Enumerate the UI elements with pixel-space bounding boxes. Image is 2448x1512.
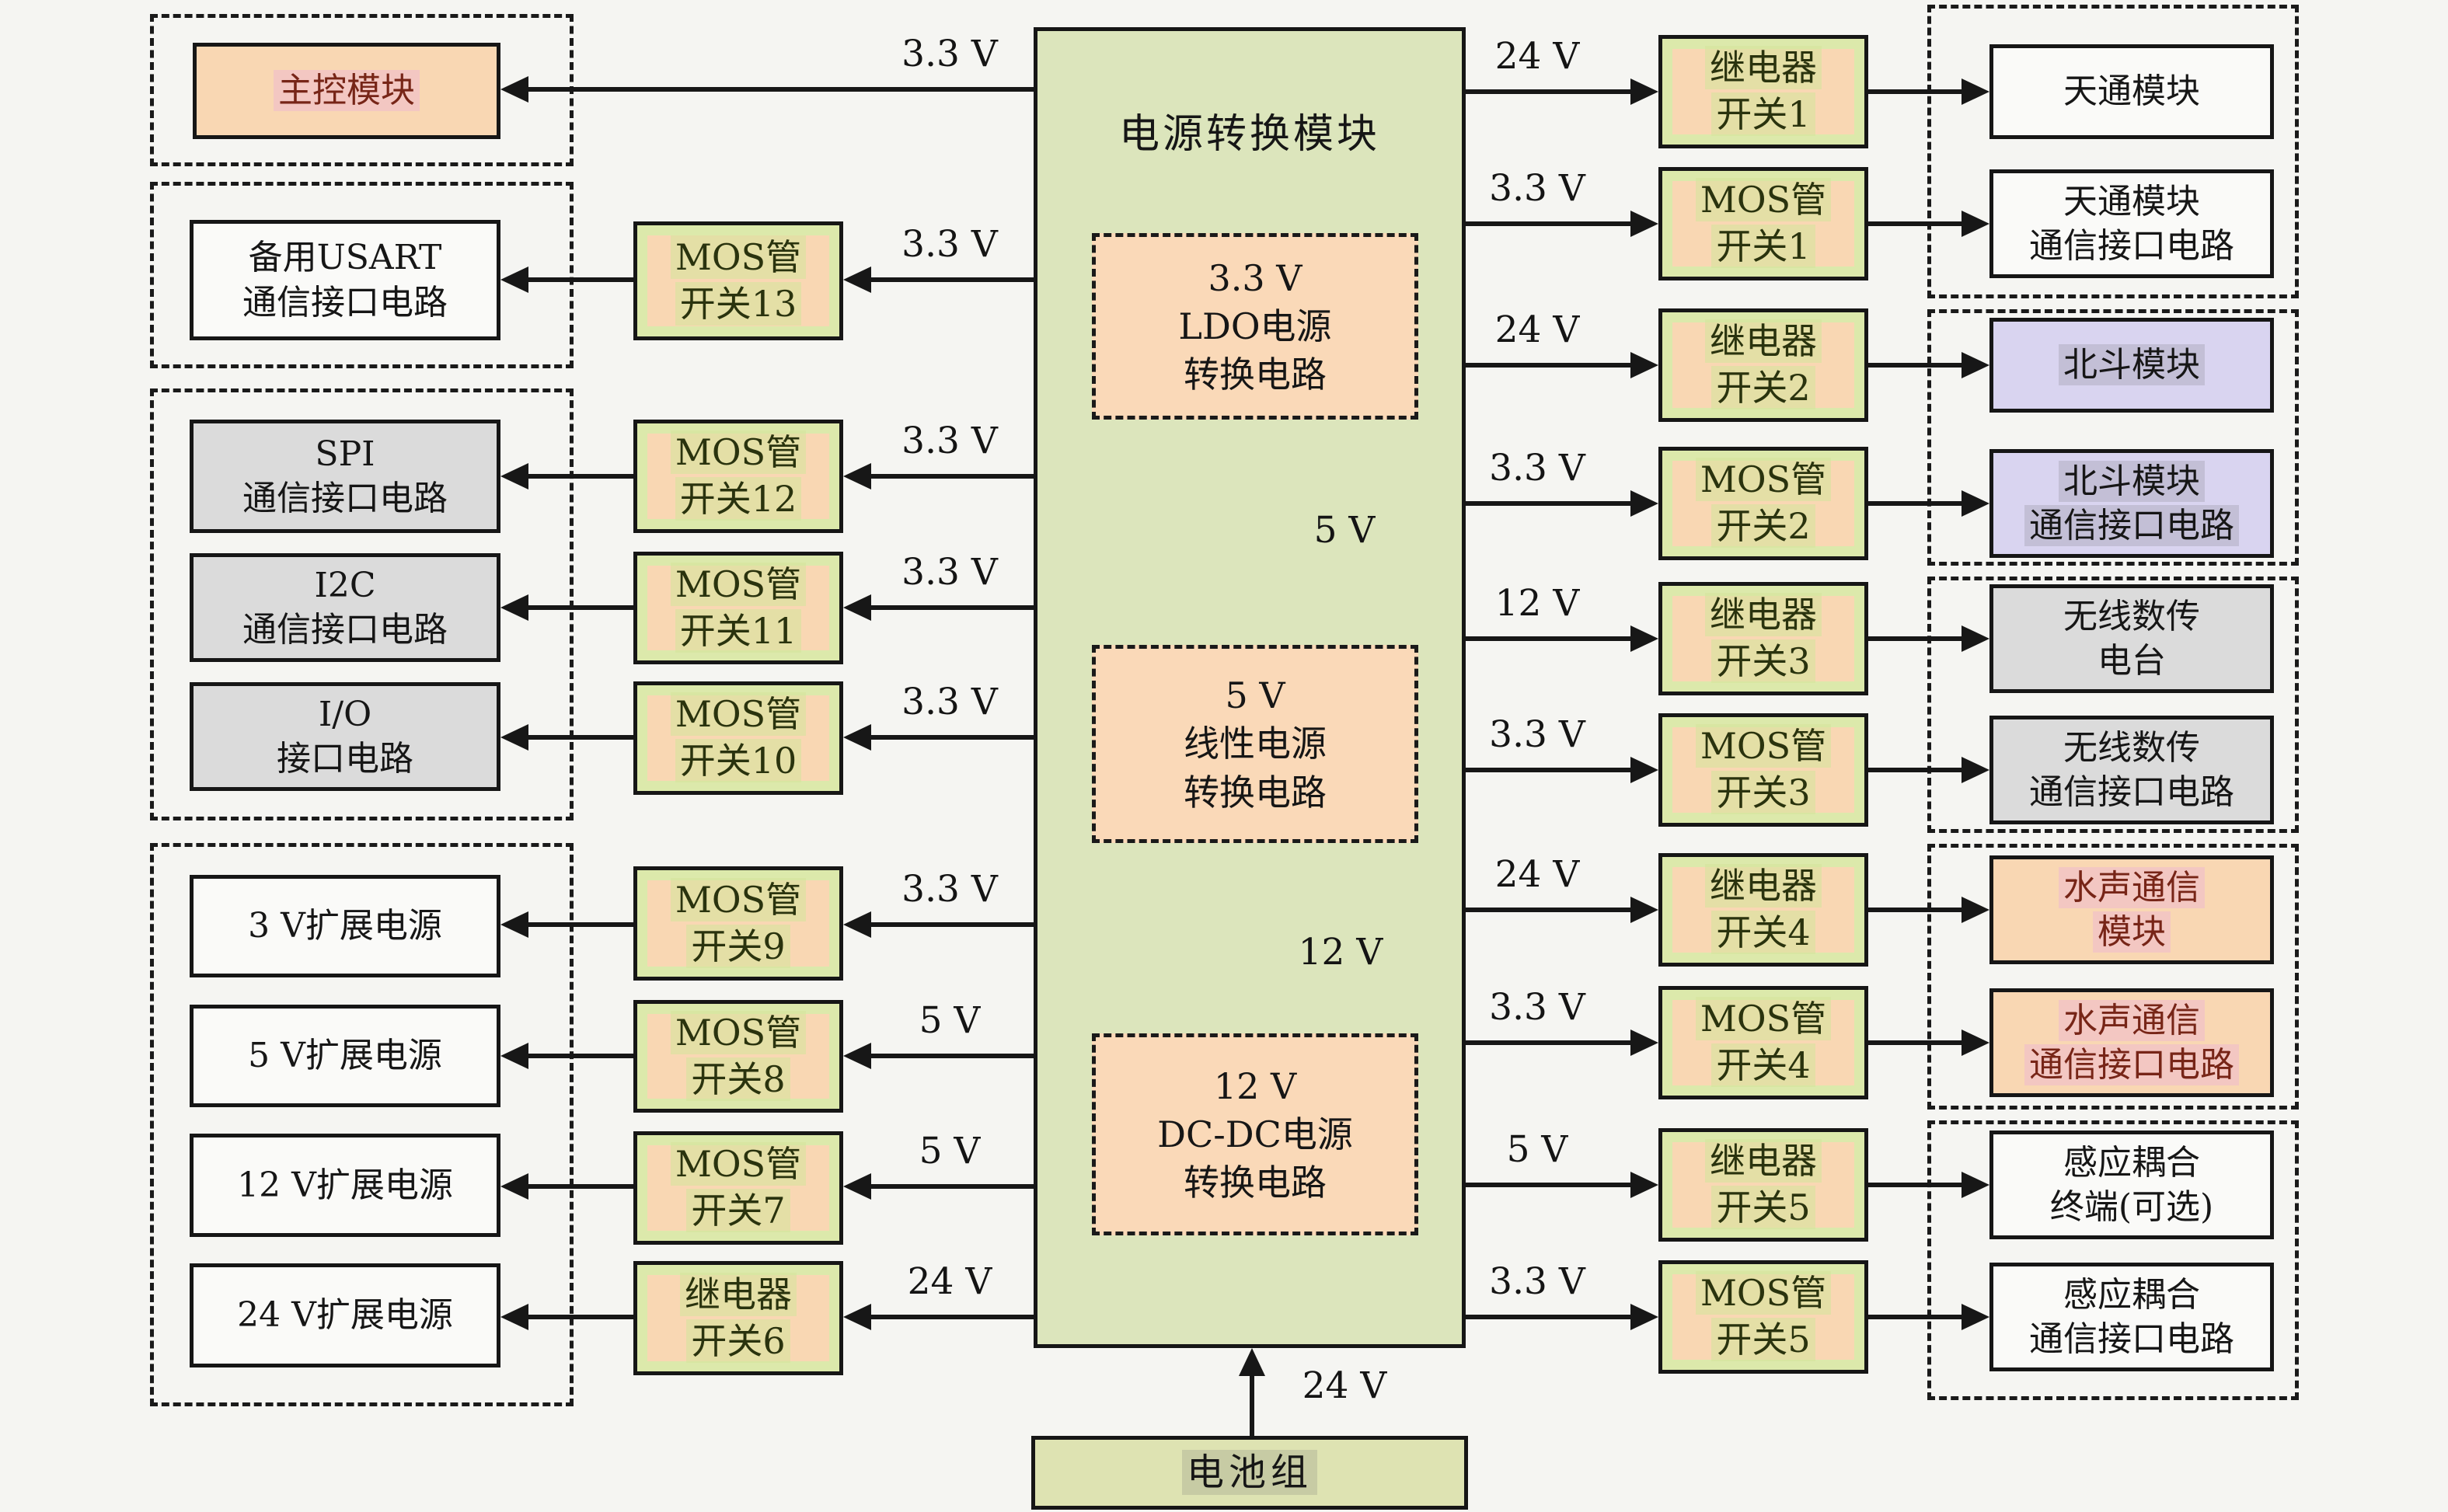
arrowhead-right [1962,490,1989,517]
connector-line [868,1054,1034,1058]
connector-line [868,1315,1034,1319]
voltage-label: 3.3 V [833,223,1066,266]
node-text-line: 12 V [1096,1062,1414,1110]
mos-switch-8-label: 开关8 [686,1057,790,1101]
node-text-line: 开关2 [1662,365,1864,412]
node-text-line: MOS管 [1662,177,1864,224]
mos-switch-12-label: 开关12 [675,477,802,521]
arrowhead-right [1630,625,1658,652]
mos-switch-2-label: MOS管 [1696,458,1831,501]
tiantong-comm-interface-label: 天通模块 [2059,181,2205,222]
ldo-3v3-stage-label: LDO电源 [1173,305,1336,348]
ldo-3v3-stage: 3.3 VLDO电源转换电路 [1092,233,1418,420]
node-text-line: 继电器 [1662,863,1864,910]
linear-5v-stage: 5 V线性电源转换电路 [1092,645,1418,843]
inductive-coupling-interface-label: 感应耦合 [2059,1274,2205,1315]
hydroacoustic-comm-interface-label: 水声通信 [2059,1000,2205,1041]
voltage-label: 5 V [833,999,1066,1042]
node-text-line: 无线数传 [1993,726,2270,770]
mos-switch-10-label: MOS管 [671,692,806,736]
node-text-line: I/O [194,692,497,737]
node-text-line: 通信接口电路 [1993,770,2270,814]
main-control-module: 主控模块 [193,43,500,139]
i2c-interface: I2C通信接口电路 [190,553,500,662]
node-text-line: 开关12 [637,476,839,523]
node-text-line: 3 V扩展电源 [194,904,497,948]
mos-switch-1-label: 开关1 [1711,225,1815,268]
expansion-power-24v: 24 V扩展电源 [190,1263,500,1367]
voltage-label: 24 V [833,1260,1066,1303]
connector-line [525,605,633,610]
voltage-label: 24 V [1421,35,1654,78]
connector-line [1868,221,1965,226]
voltage-label: 24 V [1421,308,1654,351]
hydroacoustic-module: 水声通信模块 [1989,855,2274,964]
tiantong-module: 天通模块 [1989,44,2274,139]
io-interface: I/O接口电路 [190,682,500,791]
linear-5v-stage-label: 转换电路 [1179,771,1331,814]
hydroacoustic-module-label: 水声通信 [2059,867,2205,908]
node-text-line: 开关4 [1662,1043,1864,1089]
node-text-line: MOS管 [1662,1270,1864,1317]
voltage-label: 3.3 V [1421,986,1654,1029]
arrowhead-left [500,724,528,751]
expansion-power-5v-label: 5 V扩展电源 [243,1035,447,1076]
beidou-module: 北斗模块 [1989,318,2274,413]
radio-station-label: 无线数传 [2059,596,2205,637]
node-text-line: 开关5 [1662,1185,1864,1232]
arrowhead-left [843,463,871,489]
node-text-line: 转换电路 [1096,350,1414,399]
connector-line [1466,1040,1634,1045]
mos-switch-4: MOS管开关4 [1658,986,1868,1099]
node-text-line: I2C [194,563,497,608]
node-text-line: 24 V扩展电源 [194,1293,497,1337]
connector-line [1868,89,1965,94]
node-text-line: 感应耦合 [1993,1273,2270,1317]
node-text-line: 开关7 [637,1188,839,1235]
arrowhead-left [843,911,871,938]
mos-switch-9: MOS管开关9 [633,866,843,981]
voltage-label: 3.3 V [833,868,1066,911]
inductive-coupling-interface-label: 通信接口电路 [2024,1319,2239,1360]
arrowhead-right [1962,1029,1989,1056]
backup-usart-interface-label: 备用USART [244,237,447,278]
node-text-line: 北斗模块 [1993,343,2270,387]
spi-interface: SPI通信接口电路 [190,420,500,533]
spi-interface-label: SPI [310,434,379,475]
node-text-line: 通信接口电路 [1993,1043,2270,1087]
mos-switch-4-label: MOS管 [1696,997,1831,1040]
connector-line [868,474,1034,479]
arrowhead-right [1962,1172,1989,1198]
radio-station: 无线数传电台 [1989,584,2274,693]
tiantong-comm-interface-label: 通信接口电路 [2024,225,2239,267]
connector-line [1868,768,1965,772]
relay-switch-3-label: 继电器 [1705,593,1822,636]
node-text-line: 3.3 V [1096,254,1414,302]
ldo-3v3-stage-label: 3.3 V [1204,256,1307,300]
mos-switch-5-label: MOS管 [1696,1271,1831,1315]
inductive-coupling-terminal: 感应耦合终端(可选) [1989,1131,2274,1239]
mos-switch-1: MOS管开关1 [1658,167,1868,280]
relay-switch-1: 继电器开关1 [1658,35,1868,148]
node-text-line: 通信接口电路 [1993,503,2270,548]
connector-line [1868,636,1965,641]
inductive-coupling-terminal-label: 感应耦合 [2059,1142,2205,1183]
node-text-line: MOS管 [637,562,839,608]
connector-line [1868,501,1965,506]
node-text-line: 继电器 [1662,1138,1864,1185]
arrowhead-left [843,1043,871,1069]
node-text-line: 天通模块 [1993,69,2270,113]
mos-switch-11-label: 开关11 [675,609,802,653]
node-text-line: 开关6 [637,1319,839,1365]
expansion-power-3v-label: 3 V扩展电源 [243,905,447,946]
connector-line [1466,1183,1634,1187]
connector-line [525,277,633,282]
voltage-label: 3.3 V [833,681,1066,723]
node-text-line: MOS管 [637,1010,839,1057]
relay-switch-3: 继电器开关3 [1658,582,1868,695]
node-text-line: 转换电路 [1096,1158,1414,1207]
backup-usart-interface: 备用USART通信接口电路 [190,220,500,340]
connector-line [525,735,633,740]
dcdc-12v-stage-label: 12 V [1209,1064,1301,1108]
relay-switch-2-label: 开关2 [1711,366,1815,409]
voltage-label: 3.3 V [1421,447,1654,489]
connector-line [525,922,633,927]
arrowhead-left [500,911,528,938]
beidou-comm-interface-label: 北斗模块 [2059,461,2205,502]
io-interface-label: I/O [314,694,376,735]
linear-5v-stage-label: 5 V [1220,674,1289,717]
mos-switch-13: MOS管开关13 [633,221,843,340]
node-text-line: 开关1 [1662,224,1864,270]
mos-switch-5: MOS管开关5 [1658,1260,1868,1374]
voltage-label: 5 V [1228,509,1461,552]
node-text-line: 北斗模块 [1993,459,2270,503]
arrowhead-right [1630,1304,1658,1330]
node-text-line: 开关1 [1662,92,1864,138]
main-control-module-label: 主控模块 [274,70,420,111]
node-text-line: 备用USART [194,235,497,280]
mos-switch-2-label: 开关2 [1711,504,1815,548]
mos-switch-7-label: MOS管 [671,1142,806,1186]
connector-line [1466,221,1634,226]
node-text-line: 继电器 [637,1272,839,1319]
node-text-line: 感应耦合 [1993,1141,2270,1185]
arrowhead-left [843,1173,871,1200]
node-text-line: 接口电路 [194,737,497,781]
mos-switch-7: MOS管开关7 [633,1131,843,1245]
dcdc-12v-stage-label: DC-DC电源 [1153,1113,1358,1156]
node-text-line: MOS管 [1662,996,1864,1043]
radio-comm-interface-label: 无线数传 [2059,727,2205,768]
arrowhead-left [500,1173,528,1200]
connector-line [868,735,1034,740]
node-text-line: MOS管 [637,1141,839,1188]
node-text-line: 继电器 [1662,592,1864,639]
mos-switch-8: MOS管开关8 [633,1000,843,1113]
connector-line [1466,363,1634,368]
node-text-line: 开关4 [1662,910,1864,956]
relay-switch-3-label: 开关3 [1711,639,1815,683]
relay-switch-4-label: 继电器 [1705,864,1822,908]
node-text-line: 通信接口电路 [194,280,497,325]
mos-switch-3: MOS管开关3 [1658,713,1868,827]
node-text-line: 电台 [1993,639,2270,683]
connector-line [1868,908,1965,912]
relay-switch-1-label: 开关1 [1711,92,1815,136]
voltage-label: 3.3 V [833,33,1066,75]
node-text-line: MOS管 [637,877,839,924]
mos-switch-10-label: 开关10 [675,739,802,782]
mos-switch-9-label: MOS管 [671,878,806,921]
relay-switch-2-label: 继电器 [1705,319,1822,363]
node-text-line: 继电器 [1662,319,1864,365]
radio-comm-interface-label: 通信接口电路 [2024,772,2239,813]
connector-line [1868,363,1965,368]
expansion-power-12v: 12 V扩展电源 [190,1134,500,1237]
arrowhead-left [500,267,528,293]
node-text-line: 水声通信 [1993,998,2270,1043]
node-text-line: LDO电源 [1096,302,1414,350]
connector-line [525,87,1034,92]
voltage-label: 3.3 V [1421,167,1654,210]
mos-switch-12: MOS管开关12 [633,420,843,533]
radio-station-label: 电台 [2093,640,2171,681]
arrowhead-right [1962,352,1989,378]
relay-switch-2: 继电器开关2 [1658,308,1868,422]
mos-switch-8-label: MOS管 [671,1011,806,1054]
node-text-line: 水声通信 [1993,866,2270,910]
node-text-line: 开关9 [637,924,839,970]
i2c-interface-label: 通信接口电路 [238,609,452,650]
expansion-power-5v: 5 V扩展电源 [190,1005,500,1107]
voltage-label: 12 V [1421,582,1654,625]
connector-line [1466,501,1634,506]
expansion-power-24v-label: 24 V扩展电源 [232,1294,458,1336]
connector-line [868,922,1034,927]
connector-line [1466,908,1634,912]
mos-switch-10: MOS管开关10 [633,681,843,795]
node-text-line: 电池组 [1035,1448,1464,1496]
relay-switch-5: 继电器开关5 [1658,1128,1868,1242]
expansion-power-3v: 3 V扩展电源 [190,875,500,977]
node-text-line: 天通模块 [1993,179,2270,224]
node-text-line: 开关11 [637,608,839,655]
mos-switch-9-label: 开关9 [686,925,790,968]
hydroacoustic-module-label: 模块 [2093,911,2171,953]
relay-switch-4: 继电器开关4 [1658,853,1868,967]
node-text-line: 无线数传 [1993,594,2270,639]
node-text-line: 开关2 [1662,503,1864,550]
relay-switch-6-label: 继电器 [680,1273,797,1316]
connector-line [868,1184,1034,1189]
spi-interface-label: 通信接口电路 [238,478,452,519]
arrowhead-left [500,594,528,621]
arrowhead-right [1630,78,1658,105]
power-distribution-block-diagram: 主控模块备用USART通信接口电路SPI通信接口电路I2C通信接口电路I/O接口… [0,0,2448,1512]
node-text-line: 开关5 [1662,1317,1864,1364]
node-text-line: MOS管 [637,430,839,476]
arrowhead-left [843,594,871,621]
voltage-label: 3.3 V [1421,713,1654,756]
node-text-line: DC-DC电源 [1096,1110,1414,1158]
node-text-line: MOS管 [1662,723,1864,770]
linear-5v-stage-label: 线性电源 [1179,722,1331,765]
arrowhead-right [1962,897,1989,923]
node-text-line: 通信接口电路 [194,476,497,521]
hydroacoustic-comm-interface-label: 通信接口电路 [2024,1044,2239,1085]
i2c-interface-label: I2C [309,565,380,606]
connector-line [868,277,1034,282]
node-text-line: 开关3 [1662,770,1864,817]
voltage-label: 5 V [833,1130,1066,1172]
arrowhead-right [1962,757,1989,783]
node-text-line: 开关13 [637,281,839,328]
relay-switch-6-label: 开关6 [686,1319,790,1363]
relay-switch-6: 继电器开关6 [633,1261,843,1375]
node-text-line: 通信接口电路 [194,608,497,652]
node-text-line: 开关8 [637,1057,839,1103]
connector-line [1466,1315,1634,1319]
arrowhead-right [1630,211,1658,237]
mos-switch-4-label: 开关4 [1711,1043,1815,1087]
node-text-line: 模块 [1993,910,2270,954]
node-text-line: 通信接口电路 [1993,1317,2270,1361]
node-text-line: 开关3 [1662,639,1864,685]
beidou-comm-interface: 北斗模块通信接口电路 [1989,449,2274,558]
voltage-label: 3.3 V [833,551,1066,594]
node-text-line: MOS管 [637,692,839,738]
inductive-coupling-interface: 感应耦合通信接口电路 [1989,1263,2274,1371]
node-text-line: 线性电源 [1096,719,1414,768]
io-interface-label: 接口电路 [272,738,418,779]
arrowhead-left [500,463,528,489]
node-text-line: 5 V [1096,671,1414,719]
connector-line [1868,1315,1965,1319]
tiantong-module-label: 天通模块 [2059,71,2205,112]
hydroacoustic-comm-interface: 水声通信通信接口电路 [1989,988,2274,1097]
radio-comm-interface: 无线数传通信接口电路 [1989,716,2274,824]
ldo-3v3-stage-label: 转换电路 [1179,353,1331,396]
tiantong-comm-interface: 天通模块通信接口电路 [1989,169,2274,278]
voltage-label: 12 V [1224,931,1457,974]
mos-switch-13-label: 开关13 [675,282,802,326]
connector-line [868,605,1034,610]
voltage-label: 3.3 V [1421,1260,1654,1303]
node-text-line: 通信接口电路 [1993,224,2270,268]
relay-switch-5-label: 继电器 [1705,1139,1822,1183]
dcdc-12v-stage-label: 转换电路 [1179,1161,1331,1204]
node-text-line: MOS管 [1662,457,1864,503]
beidou-module-label: 北斗模块 [2059,344,2205,385]
node-text-line: SPI [194,432,497,476]
mos-switch-13-label: MOS管 [671,235,806,279]
node-text-line: 12 V扩展电源 [194,1163,497,1207]
arrowhead-left [843,724,871,751]
connector-line [525,1315,633,1319]
mos-switch-12-label: MOS管 [671,430,806,474]
backup-usart-interface-label: 通信接口电路 [238,282,452,323]
power-conversion-module-label: 电源转换模块 [1114,110,1385,159]
arrowhead-left [500,76,528,103]
inductive-coupling-terminal-label: 终端(可选) [2045,1186,2218,1228]
connector-line [525,1054,633,1058]
arrowhead-left [500,1043,528,1069]
battery-pack-label: 电池组 [1182,1450,1317,1495]
relay-switch-4-label: 开关4 [1711,911,1815,954]
arrowhead-left [843,267,871,293]
connector-line [1868,1040,1965,1045]
connector-line [525,1184,633,1189]
dcdc-12v-stage: 12 VDC-DC电源转换电路 [1092,1033,1418,1235]
node-text-line: 5 V扩展电源 [194,1033,497,1078]
mos-switch-1-label: MOS管 [1696,178,1831,221]
mos-switch-2: MOS管开关2 [1658,447,1868,560]
arrowhead-right [1962,78,1989,105]
node-text-line: 主控模块 [197,68,497,113]
node-text-line: MOS管 [637,235,839,281]
connector-line [1466,636,1634,641]
arrowhead-right [1630,352,1658,378]
beidou-comm-interface-label: 通信接口电路 [2024,505,2239,546]
voltage-label: 5 V [1421,1128,1654,1171]
mos-switch-3-label: 开关3 [1711,771,1815,814]
mos-switch-5-label: 开关5 [1711,1318,1815,1361]
arrowhead-right [1630,490,1658,517]
arrowhead-left [843,1304,871,1330]
arrowhead-right [1962,625,1989,652]
arrowhead-right [1630,897,1658,923]
battery-pack: 电池组 [1031,1436,1468,1510]
relay-switch-5-label: 开关5 [1711,1186,1815,1229]
connector-line [1868,1183,1965,1187]
relay-switch-1-label: 继电器 [1705,46,1822,89]
mos-switch-11: MOS管开关11 [633,552,843,664]
node-text-line: 终端(可选) [1993,1185,2270,1229]
mos-switch-7-label: 开关7 [686,1189,790,1232]
node-text-line: 继电器 [1662,45,1864,92]
connector-line [1466,768,1634,772]
arrowhead-right [1630,1029,1658,1056]
voltage-label: 24 V [1228,1364,1461,1407]
mos-switch-3-label: MOS管 [1696,724,1831,768]
arrowhead-right [1962,211,1989,237]
expansion-power-12v-label: 12 V扩展电源 [232,1165,458,1206]
connector-line [525,474,633,479]
node-text-line: 转换电路 [1096,768,1414,817]
node-text-line: 开关10 [637,738,839,785]
arrowhead-left [500,1304,528,1330]
arrowhead-right [1962,1304,1989,1330]
mos-switch-11-label: MOS管 [671,563,806,606]
arrowhead-right [1630,757,1658,783]
node-text-line: 电源转换模块 [1037,109,1462,162]
voltage-label: 24 V [1421,853,1654,896]
connector-line [1466,89,1634,94]
voltage-label: 3.3 V [833,420,1066,462]
arrowhead-right [1630,1172,1658,1198]
